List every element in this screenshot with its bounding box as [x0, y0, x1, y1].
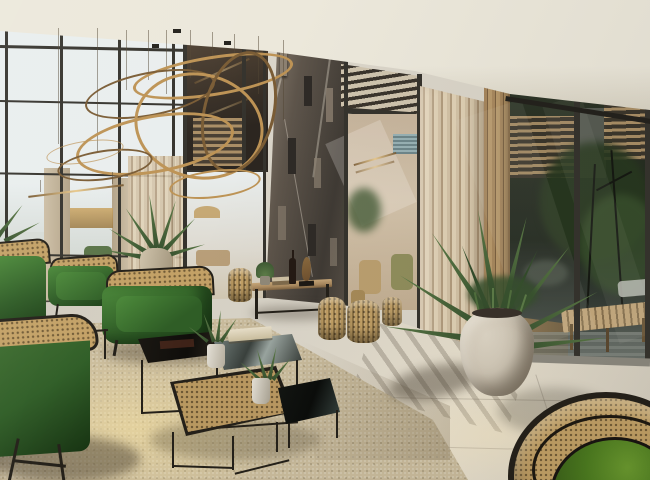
lobby-scene [0, 0, 650, 480]
woven-stool [228, 268, 252, 302]
console-plant-pot [260, 276, 270, 285]
green-armchair-rear [0, 312, 98, 480]
chandelier-cable [283, 40, 284, 120]
woven-stool [347, 300, 380, 343]
marble-relief-panel [330, 238, 337, 266]
table-leg [232, 436, 234, 470]
table-plant-pot [207, 344, 225, 368]
console-leg [255, 289, 258, 319]
rattan-lounge-chair [500, 360, 650, 480]
table-leg [336, 410, 338, 438]
table-rail [174, 465, 234, 469]
terrace-chair-tan [359, 260, 381, 294]
palm-core [468, 276, 538, 312]
decor-bottle-neck [292, 250, 294, 260]
table-leg [141, 360, 143, 414]
table-leg [276, 422, 278, 452]
pendant-drop [40, 180, 41, 192]
sculpture-base [299, 281, 314, 287]
terrace-lounger [196, 250, 230, 266]
table-leg [172, 432, 174, 468]
chair-stretcher [14, 459, 66, 467]
palm-frond [156, 199, 181, 251]
plant-leaf [187, 324, 210, 344]
chair-seat [56, 272, 106, 300]
side-table-leg [104, 329, 106, 359]
pot-soil [472, 308, 522, 318]
decor-bottle [289, 258, 296, 284]
marble-relief-panel [308, 224, 316, 256]
chair-velvet-back [0, 341, 90, 458]
chandelier-cable [58, 28, 59, 144]
pendant-drop [112, 172, 113, 184]
coffee-tables [130, 320, 350, 470]
plant-leaf [218, 317, 239, 344]
table-plant-pot [252, 378, 270, 404]
